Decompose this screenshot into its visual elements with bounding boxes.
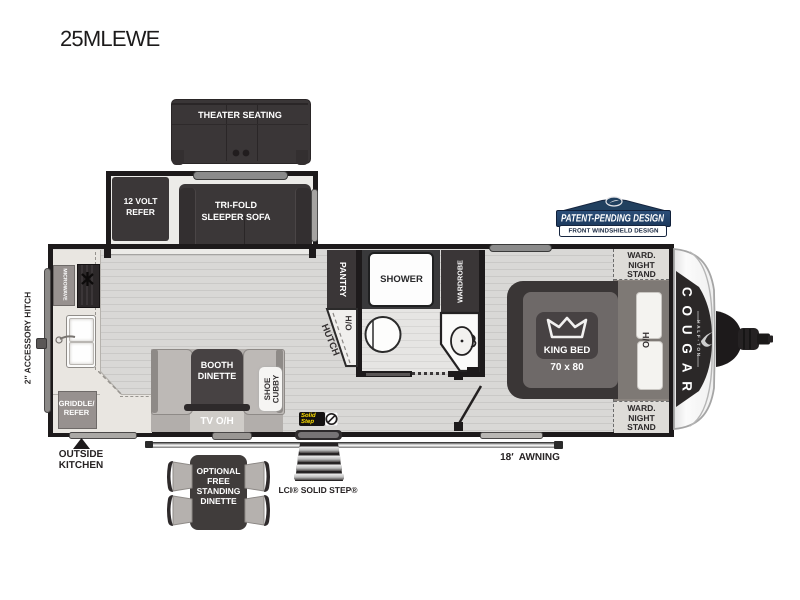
svg-text:CUBBY: CUBBY [272,374,281,403]
svg-text:FRONT WINDSHIELD DESIGN: FRONT WINDSHIELD DESIGN [568,228,659,235]
svg-text:HUTCH: HUTCH [319,323,342,358]
svg-text:O/H: O/H [641,332,651,348]
svg-text:HALF-TON: HALF-TON [696,320,701,358]
svg-text:2″ ACCESSORY HITCH: 2″ ACCESSORY HITCH [22,292,32,385]
svg-text:PANTRY: PANTRY [338,262,348,297]
svg-text:WARDROBE: WARDROBE [455,260,464,303]
svg-text:MICROWAVE: MICROWAVE [62,268,68,301]
svg-text:PATENT-PENDING DESIGN: PATENT-PENDING DESIGN [561,212,664,224]
